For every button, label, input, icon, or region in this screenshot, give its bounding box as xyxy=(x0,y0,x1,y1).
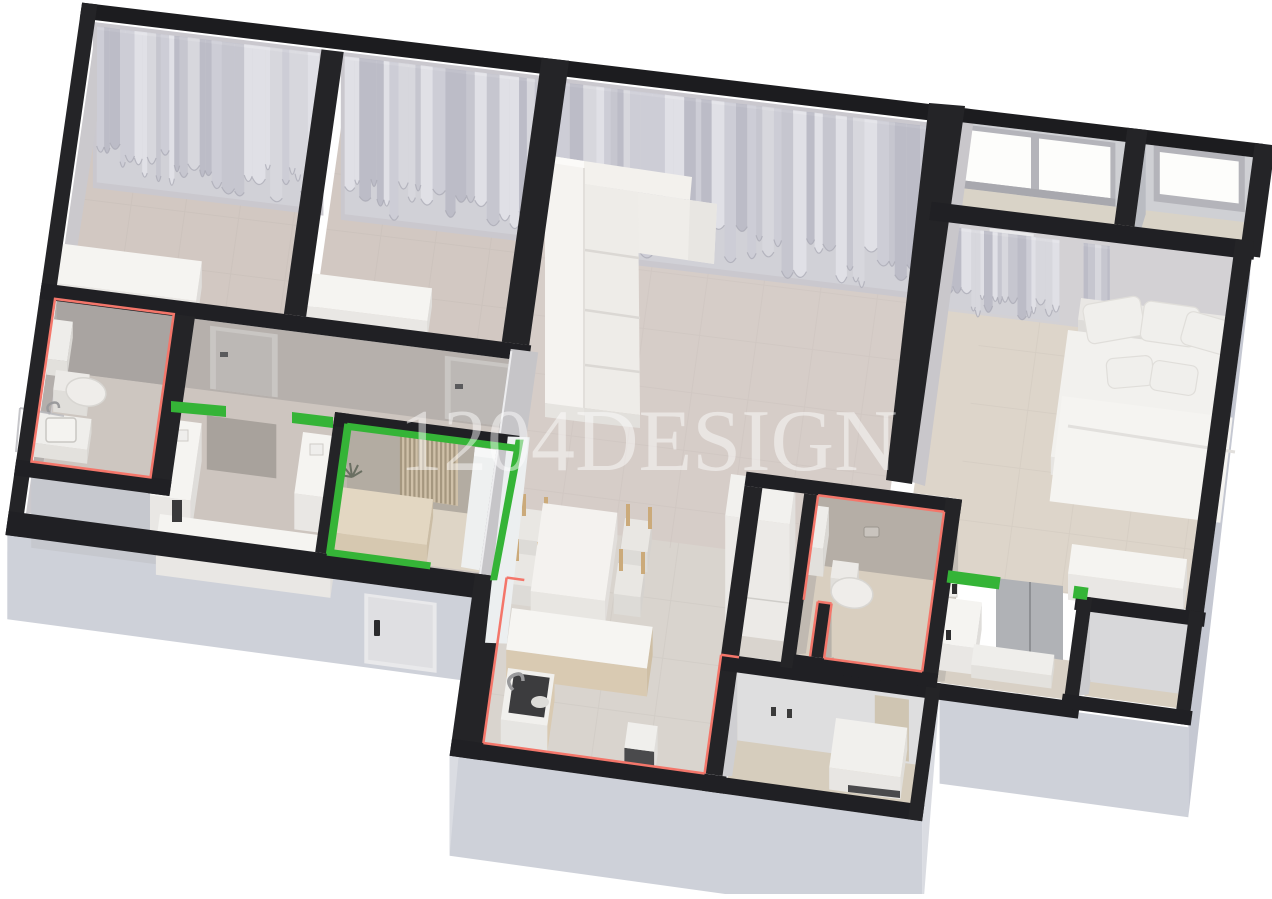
svg-text:1204DESIGN: 1204DESIGN xyxy=(399,393,898,490)
